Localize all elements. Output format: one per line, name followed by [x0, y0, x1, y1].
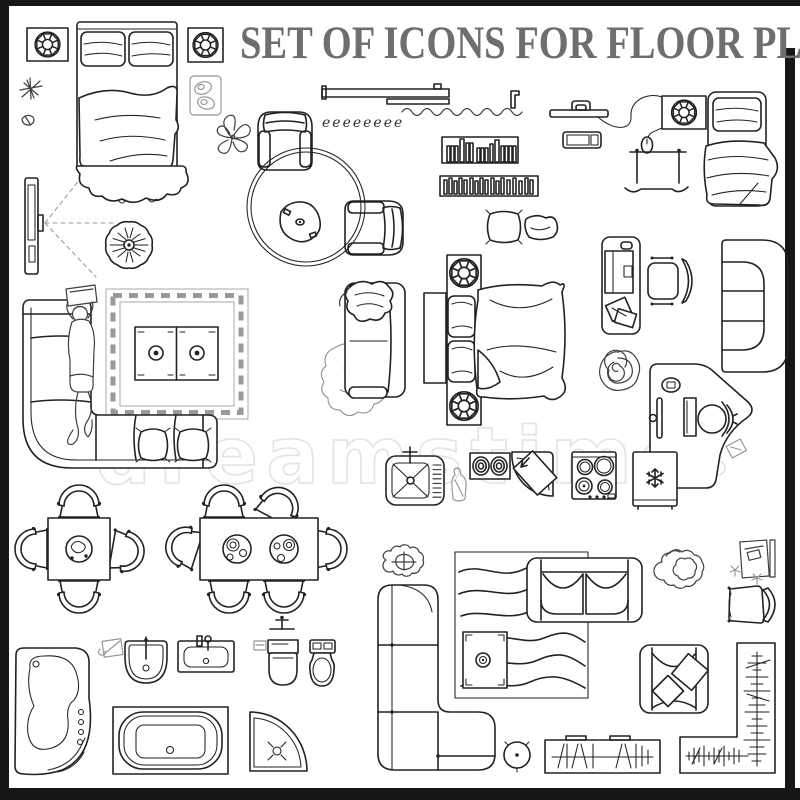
poster-title: SET OF ICONS FOR FLOOR PLAN [240, 16, 800, 70]
refrigerator [633, 452, 677, 509]
plant-bush-large [654, 550, 704, 589]
four-burner-stove [572, 452, 616, 499]
double-coil-burner [470, 453, 510, 479]
armchair-rotated [345, 201, 403, 255]
cabinet-table-two-doors [135, 327, 218, 380]
floor-plan-poster: dreamstime [0, 0, 800, 800]
toilet-oval-bowl [310, 640, 335, 686]
switch-plate-sketch [190, 76, 221, 115]
corner-shower-tray [250, 712, 307, 771]
rectangular-bathtub [113, 707, 228, 774]
star-sketch [20, 78, 42, 99]
loveseat-with-blanket [340, 282, 405, 398]
corner-jacuzzi-bathtub [15, 648, 90, 775]
office-chair [648, 257, 692, 306]
curtain-squiggle: eeeeeeee [322, 109, 522, 132]
vanity-sink [178, 636, 234, 672]
trapezoid-armchair [728, 586, 776, 623]
double-bed-with-blanket [77, 22, 178, 178]
curved-console-table [76, 166, 188, 203]
cushion-large [486, 210, 522, 244]
rose-plant-sketch [600, 350, 640, 390]
flower-sketch [217, 115, 250, 153]
safe-table [463, 632, 507, 688]
loveseat-sofa [527, 558, 642, 622]
plant-bush [383, 545, 424, 576]
pedestal-sink [125, 637, 167, 683]
chesterfield-sofa [722, 240, 788, 372]
cushion-small [525, 216, 557, 240]
curtain-squiggle-text: eeeeeeee [322, 115, 404, 131]
nightstand-with-plant-right [188, 28, 223, 62]
wall-shelf [322, 84, 449, 104]
table-with-chair-sketch [740, 540, 775, 578]
single-bed [704, 92, 777, 206]
kitchen-sink [386, 447, 444, 505]
soap-sketch [98, 639, 123, 657]
star-sketch-small [22, 115, 34, 125]
quilted-headboard [424, 293, 446, 383]
wall-bracket [511, 91, 519, 108]
bookshelf-dense [440, 176, 538, 196]
toilet-square-bowl [254, 640, 298, 685]
drying-rack-bench [625, 149, 688, 192]
round-plant-top-view [106, 222, 153, 269]
office-desk-with-laptop [602, 237, 640, 334]
armchair-with-cushions [640, 645, 708, 713]
shower-fixture [270, 616, 294, 629]
nightstand-with-plant-left [27, 28, 68, 61]
nightstand-with-plant-top-right [662, 96, 706, 129]
bookshelf-with-books [442, 137, 518, 163]
floor-plan-icon-canvas: dreamstime [0, 0, 800, 800]
media-remote [563, 132, 601, 148]
double-bed-with-duvet [448, 282, 565, 399]
triangular-coffee-table [280, 202, 320, 242]
tv-stand-hatched [545, 736, 660, 773]
round-stool [504, 742, 530, 772]
armchair [258, 112, 312, 170]
square-dining-table-four-chairs [15, 485, 148, 613]
